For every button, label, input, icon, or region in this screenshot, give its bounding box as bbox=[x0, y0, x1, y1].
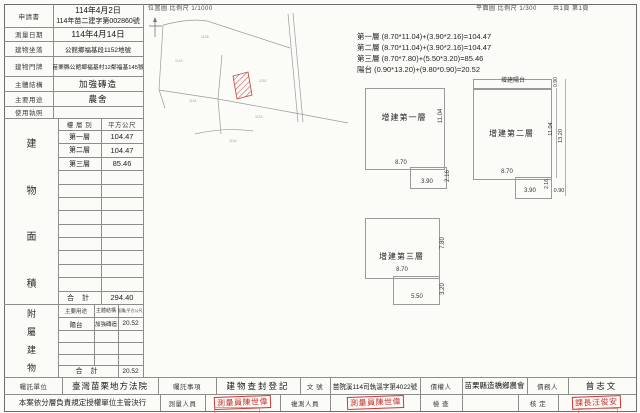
plan1-outline bbox=[365, 88, 445, 170]
plan2-width-dim: 8.70 bbox=[492, 169, 522, 175]
annex-row-area: 20.52 bbox=[118, 317, 143, 330]
stamp-fragment bbox=[578, 408, 618, 413]
annex-vertical-label: 附 bbox=[5, 307, 58, 320]
entrust-unit-value: 臺灣苗栗地方法院 bbox=[62, 377, 158, 394]
structure-value: 加強磚造 bbox=[53, 76, 143, 91]
resurvey-stamp-cell: 測量員陳世偉 bbox=[330, 394, 420, 411]
annex-total-label: 合 計 bbox=[58, 365, 118, 377]
plan2-balcony-label: 增建陽台 bbox=[493, 75, 533, 84]
calc-balcony: 陽台 (0.90*13.20)+(9.80*0.90)=20.52 bbox=[357, 64, 617, 75]
divider bbox=[58, 184, 143, 185]
calc-floor2: 第二層 (8.70*11.04)+(3.90*2.16)=104.47 bbox=[357, 42, 617, 53]
floor-total-label: 合 計 bbox=[58, 291, 101, 304]
annex-row-use: 陽台 bbox=[58, 317, 94, 330]
plan1-width-dim: 8.70 bbox=[386, 160, 416, 166]
creditor-value: 苗栗縣造橋鄉農會 bbox=[462, 377, 527, 394]
divider bbox=[58, 354, 143, 355]
dim-line bbox=[556, 88, 557, 178]
plan2-corner-width-dim: 0.90 bbox=[549, 188, 569, 194]
use-permit-value bbox=[53, 106, 143, 118]
main-use-value: 農舍 bbox=[53, 91, 143, 106]
plan1-ext-outline bbox=[410, 167, 447, 189]
plan3-ext-height-dim: 3.20 bbox=[440, 274, 446, 304]
field-label-use-permit: 使用執照 bbox=[5, 106, 53, 118]
dim-line bbox=[565, 79, 566, 196]
annex-col-use: 主要用途 bbox=[58, 304, 94, 317]
approve-label: 核 定 bbox=[518, 394, 558, 411]
divider bbox=[58, 224, 143, 225]
parcel-number: 1153 bbox=[255, 115, 263, 119]
plan2-total-height-dim: 13.20 bbox=[558, 119, 564, 153]
building-address: 苗栗縣公館鄉福基村12鄰福基145號 bbox=[53, 56, 143, 76]
parcel-number: 1152 bbox=[259, 79, 267, 83]
field-label-application: 申請書 bbox=[5, 5, 53, 27]
divider bbox=[58, 277, 143, 278]
subject-building-hatched bbox=[233, 72, 252, 99]
creditor-label: 債權人 bbox=[420, 377, 462, 394]
floor-table-col-area: 平方公尺 bbox=[101, 118, 143, 130]
parcel-boundaries bbox=[159, 13, 348, 134]
annex-row-structure: 加強磚造 bbox=[94, 317, 118, 330]
entrust-unit-label: 囑託單位 bbox=[5, 377, 62, 394]
stamp-fragment bbox=[214, 407, 260, 413]
floor-table-vertical-label: 積 bbox=[5, 275, 58, 290]
plan3-label: 增建第三層 bbox=[367, 251, 436, 262]
building-site: 公館鄉福基段1152地號 bbox=[53, 41, 143, 56]
floor-table-vertical-label: 建 bbox=[5, 135, 58, 150]
parcel-number: 1148 bbox=[201, 35, 209, 39]
plan3-width-dim: 8.70 bbox=[388, 267, 416, 273]
annex-vertical-label: 物 bbox=[5, 361, 58, 374]
divider bbox=[58, 237, 143, 238]
divider bbox=[143, 4, 144, 377]
application-number: 114年苗二建字第002860號 bbox=[53, 15, 143, 27]
divider bbox=[58, 197, 143, 198]
plan2-height-dim: 11.04 bbox=[548, 112, 554, 146]
debtor-label: 債務人 bbox=[527, 377, 568, 394]
page-count-label: 共1頁 第1頁 bbox=[553, 3, 589, 12]
floor-row-area: 104.47 bbox=[101, 130, 143, 143]
divider bbox=[58, 210, 143, 211]
survey-result-sheet: 位置圖 比例尺 1/1000 平面圖 比例尺 1/300 共1頁 第1頁 申請書… bbox=[0, 0, 640, 413]
floor-row-area: 85.46 bbox=[101, 157, 143, 170]
doc-number-value: 苗院溪114司執溫字第4022號 bbox=[330, 377, 420, 394]
check-label: 檢 查 bbox=[420, 394, 462, 411]
surveyor-label: 測量人員 bbox=[160, 394, 205, 411]
floor-table-col-floor: 樓 層 別 bbox=[58, 118, 101, 130]
plan2-label: 增建第二層 bbox=[477, 128, 546, 139]
field-label-building-address: 建物門牌 bbox=[5, 56, 53, 76]
floor-total-value: 294.40 bbox=[101, 291, 143, 304]
plan1-label: 增建第一層 bbox=[370, 112, 438, 123]
check-stamp-cell bbox=[462, 394, 518, 411]
floor-row-name: 第二層 bbox=[58, 143, 101, 157]
delegation-note: 本案依分層負責規定授權單位主管決行 bbox=[5, 394, 160, 411]
field-label-survey-date: 測量日期 bbox=[5, 27, 53, 41]
parcel-number: 1149 bbox=[175, 59, 183, 63]
calc-floor1: 第一層 (8.70*11.04)+(3.90*2.16)=104.47 bbox=[357, 31, 617, 42]
floor-table-vertical-label: 物 bbox=[5, 182, 58, 197]
entrust-matter-label: 囑託事項 bbox=[158, 377, 216, 394]
debtor-value: 曾志文 bbox=[568, 377, 635, 394]
annex-total-value: 20.52 bbox=[118, 365, 143, 377]
resurvey-stamp: 測量員陳世偉 bbox=[346, 395, 403, 410]
divider bbox=[58, 170, 143, 171]
floor-row-name: 第一層 bbox=[58, 130, 101, 143]
field-label-structure: 主體結構 bbox=[5, 76, 53, 91]
annex-vertical-label: 建 bbox=[5, 343, 58, 356]
plan1-height-dim: 11.04 bbox=[438, 99, 444, 133]
entrust-matter-value: 建物查封登記 bbox=[216, 377, 300, 394]
parcel-number: 1154 bbox=[229, 139, 237, 143]
plan3-height-dim: 7.80 bbox=[440, 228, 446, 258]
floor-table-vertical-label: 面 bbox=[5, 228, 58, 243]
plan2-ext-width-dim: 3.90 bbox=[516, 188, 544, 194]
floor-row-name: 第三層 bbox=[58, 157, 101, 170]
divider bbox=[58, 264, 143, 265]
annex-col-area: 面積(平方公尺) bbox=[118, 304, 143, 317]
floor-row-area: 104.47 bbox=[101, 143, 143, 157]
survey-date: 114年4月14日 bbox=[53, 27, 143, 41]
field-label-main-use: 主要用途 bbox=[5, 91, 53, 106]
plan1-ext-width-dim: 3.90 bbox=[413, 179, 441, 185]
plan-title: 平面圖 比例尺 1/300 bbox=[476, 3, 537, 12]
divider bbox=[58, 330, 143, 331]
doc-number-label: 文 號 bbox=[300, 377, 330, 394]
divider bbox=[58, 342, 143, 343]
parcel-numbers: 1148 1149 1151 1152 1153 1154 bbox=[175, 35, 267, 143]
resurvey-label: 複測人員 bbox=[280, 394, 330, 411]
plan3-ext-width-dim: 5.50 bbox=[403, 294, 431, 300]
annex-col-structure: 主體結構 bbox=[94, 304, 118, 317]
location-map: 1148 1149 1151 1152 1153 1154 bbox=[145, 10, 350, 160]
parcel-number: 1151 bbox=[189, 99, 197, 103]
field-label-building-site: 建物坐落 bbox=[5, 41, 53, 56]
plan1-ext-height-dim: 2.16 bbox=[445, 165, 451, 187]
plan3-ext-outline bbox=[393, 276, 440, 305]
divider bbox=[58, 250, 143, 251]
north-arrow-icon bbox=[149, 17, 162, 37]
calc-floor3: 第三層 (8.70*7.80)+(5.50*3.20)=85.46 bbox=[357, 53, 617, 64]
annex-vertical-label: 屬 bbox=[5, 325, 58, 338]
